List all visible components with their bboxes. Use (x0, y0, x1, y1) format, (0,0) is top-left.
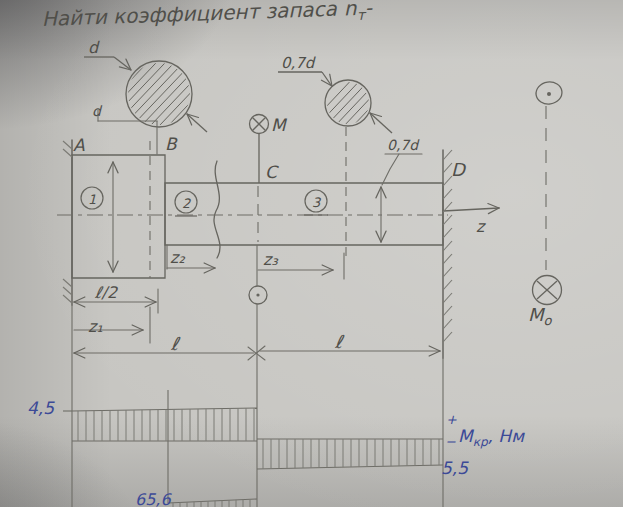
z3-label: z₃ (263, 250, 278, 269)
section1-rect (72, 155, 165, 278)
break-wave (214, 161, 220, 258)
labels: Найти коэффициент запасаnт- A B C D 1 2 … (27, 0, 553, 507)
moment-m-label: M (271, 115, 288, 135)
point-d-label: D (451, 159, 467, 180)
z1-label: z₁ (88, 317, 103, 336)
d-dim-label: d (92, 103, 103, 119)
title-text: Найти коэффициент запасаnт- (41, 0, 373, 34)
z2-label: z₂ (170, 248, 185, 267)
section1-number: 1 (88, 192, 96, 207)
centerlines (57, 106, 546, 278)
small-dim-label: 0,7d (387, 137, 420, 153)
notebook-photo: Найти коэффициент запасаnт- A B C D 1 2 … (0, 0, 623, 507)
torque-positive-value: 4,5 (27, 398, 55, 418)
moment-symbols (249, 80, 563, 304)
l-right-label: ℓ (334, 331, 345, 352)
peak-bar-line (168, 499, 257, 503)
torque-axis-label: Мкр, Нм (458, 426, 525, 449)
small-section-hatch (290, 55, 465, 145)
sign-minus: − (445, 434, 456, 449)
diagram-hatching (78, 408, 439, 507)
point-a-label: A (73, 135, 85, 155)
point-b-label: B (165, 134, 178, 154)
point-c-label: C (265, 162, 279, 182)
sign-plus: + (446, 412, 457, 427)
section-balloons (81, 187, 328, 216)
half-l-label: ℓ/2 (94, 283, 119, 302)
torque-negative-value: 5,5 (441, 458, 469, 478)
large-section-hatch (60, 45, 272, 145)
z-axis-line (443, 208, 499, 211)
section23-rect (165, 183, 443, 245)
section2-number: 2 (182, 196, 191, 211)
shaft-outline (72, 140, 499, 358)
z-axis-label: z (476, 217, 486, 236)
section3-number: 3 (312, 195, 322, 210)
l-left-label: ℓ (170, 333, 181, 354)
hand-drawing: Найти коэффициент запасаnт- A B C D 1 2 … (0, 0, 623, 507)
moment-mo-label: Mo (528, 304, 553, 328)
small-leader-label: 0,7d (281, 54, 317, 72)
cross-sections (60, 45, 465, 145)
small-dim-leader (382, 154, 399, 185)
pos-bar-top (72, 408, 257, 411)
torque-diagram (63, 245, 443, 507)
d-leader-label: d (88, 38, 100, 57)
arrowheads (74, 59, 499, 358)
torque-peak-value: 65,6 (135, 490, 172, 507)
